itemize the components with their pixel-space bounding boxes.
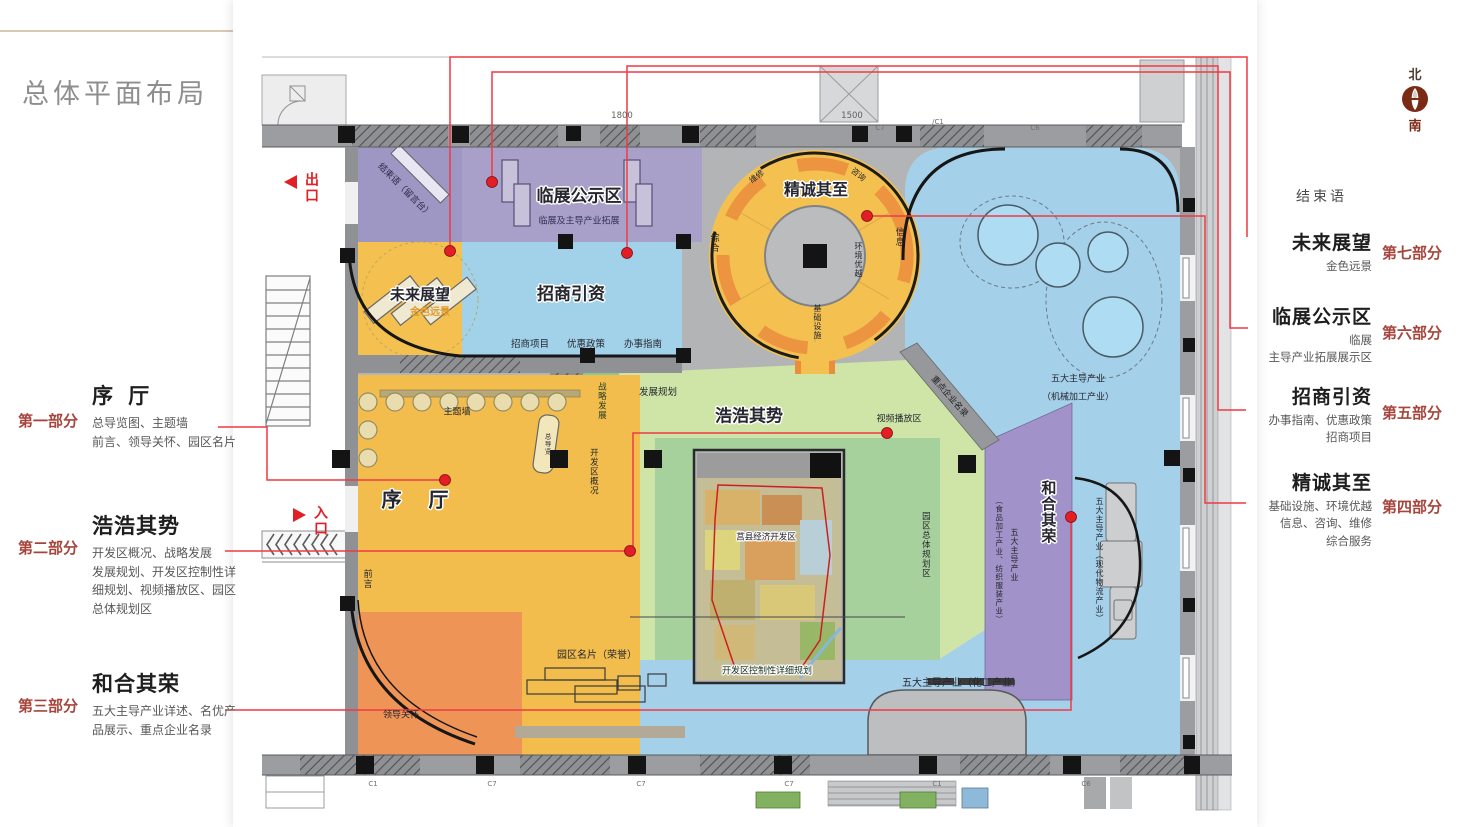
part-title: 临展公示区 (1256, 302, 1372, 329)
label-linzhan-sub: 临展及主导产业拓展 (538, 216, 619, 227)
ending-note: 结束语 (1296, 186, 1347, 206)
label-map-caption: 开发区控制性详细规划 (722, 666, 812, 677)
exit-arrow-icon (284, 175, 297, 189)
grid-ref: C6 (1030, 124, 1039, 132)
part-desc: 金色远景 (1256, 258, 1372, 275)
part-title: 精诚其至 (1256, 468, 1372, 495)
part-number: 第一部分 (18, 380, 82, 451)
grid-ref: C1 (932, 780, 941, 788)
exit-label: 出口 (301, 172, 321, 204)
part-desc: 开发区概况、战略发展 发展规划、开发区控制性详 细规划、视频播放区、园区 总体规… (92, 544, 236, 618)
part-desc: 基础设施、环境优越 信息、咨询、维修 综合服务 (1256, 498, 1372, 550)
part-title: 未来展望 (1256, 228, 1372, 255)
label-jixie-2: （机械加工产业） (1042, 392, 1114, 403)
label-fazhan: 发展规划 (639, 387, 677, 399)
label-linzhan-title: 临展公示区 (537, 186, 622, 207)
label-zhutiqiang: 主题墙 (443, 407, 470, 418)
part-desc: 五大主导产业详述、名优产 品展示、重点企业名录 (92, 702, 236, 739)
grid-ref: C7 (784, 780, 793, 788)
grid-ref: C7 (513, 124, 522, 132)
dim-1500: 1500 (841, 111, 863, 121)
annotation-part-2: 第二部分 浩浩其势 开发区概况、战略发展 发展规划、开发区控制性详 细规划、视频… (18, 510, 250, 618)
label-map-title: 莒县经济开发区 (736, 533, 796, 544)
label-jixie-1: 五大主导产业 (1051, 374, 1105, 385)
label-xuting-title: 序 厅 (382, 488, 459, 513)
label-huanjing: 环境优越 (853, 242, 863, 278)
part-title: 序 厅 (92, 380, 236, 410)
part-number: 第六部分 (1382, 302, 1442, 367)
grid-ref: C7 (748, 124, 757, 132)
entry-arrow-icon (293, 508, 306, 522)
dim-1800: 1800 (611, 111, 633, 121)
grid-ref: /C1 (932, 118, 944, 126)
part-desc: 临展 主导产业拓展展示区 (1256, 332, 1372, 367)
label-xinxi: 信息 (892, 227, 903, 247)
grid-ref: C7 (625, 124, 634, 132)
label-weilai-title: 未来展望 (390, 286, 450, 305)
part-desc: 办事指南、优惠政策 招商项目 (1256, 412, 1372, 447)
compass: 北 南 (1398, 64, 1432, 134)
part-number: 第二部分 (18, 510, 82, 618)
part-desc: 总导览图、主题墙 前言、领导关怀、园区名片 (92, 414, 236, 451)
grid-ref: C6 (1081, 780, 1090, 788)
label-zhaoshang-item3: 办事指南 (624, 339, 662, 351)
label-zonghe: 综合 (707, 233, 718, 253)
compass-icon (1401, 85, 1429, 113)
label-huagong: 五大主导产业（化工产业） (902, 678, 1022, 691)
label-haohao-title: 浩浩其势 (715, 406, 783, 427)
label-shipin: 视频播放区 (876, 414, 921, 425)
label-zhaoshang-item2: 优惠政策 (567, 339, 605, 351)
grid-ref: C7 (875, 124, 884, 132)
label-lingdao: 领导关怀 (383, 710, 419, 721)
annotation-part-1: 第一部分 序 厅 总导览图、主题墙 前言、领导关怀、园区名片 (18, 380, 250, 451)
label-mingpian: 园区名片（荣誉） (557, 650, 637, 663)
label-zhaoshang-item1: 招商项目 (511, 339, 549, 351)
grid-ref: C6 (1130, 124, 1139, 132)
part-title: 招商引资 (1256, 382, 1372, 409)
label-gaikuang: 开发区概况 (588, 448, 599, 496)
compass-south-label: 南 (1408, 115, 1421, 134)
label-zongdaolan: 总导览 (543, 433, 551, 456)
annotation-part-7: 未来展望 金色远景 第七部分 (1256, 228, 1470, 275)
annotation-part-6: 临展公示区 临展 主导产业拓展展示区 第六部分 (1256, 302, 1470, 367)
entry-label: 入口 (310, 505, 330, 537)
part-title: 和合其荣 (92, 668, 236, 698)
label-jichu: 基础设施 (812, 304, 822, 340)
label-hehe-title: 和合其荣 (1039, 480, 1058, 544)
grid-ref: C1 (368, 780, 377, 788)
label-jingcheng-title: 精诚其至 (784, 180, 848, 200)
part-number: 第四部分 (1382, 468, 1442, 550)
part-number: 第七部分 (1382, 228, 1442, 275)
grid-ref: C7 (636, 780, 645, 788)
label-qianyan: 前言 (360, 569, 371, 589)
annotation-part-5: 招商引资 办事指南、优惠政策 招商项目 第五部分 (1256, 382, 1470, 447)
label-hehe-col1: 五大主导产业 (1009, 528, 1019, 582)
part-number: 第三部分 (18, 668, 82, 739)
label-weilai-sub: 金色远景 (410, 307, 450, 320)
label-zhaoshang-title: 招商引资 (537, 284, 605, 305)
page-title: 总体平面布局 (22, 72, 208, 111)
label-zhanlue: 战略发展 (596, 382, 607, 420)
annotation-part-4: 精诚其至 基础设施、环境优越 信息、咨询、维修 综合服务 第四部分 (1256, 468, 1470, 550)
part-title: 浩浩其势 (92, 510, 236, 540)
annotation-part-3: 第三部分 和合其荣 五大主导产业详述、名优产 品展示、重点企业名录 (18, 668, 250, 739)
label-yuanqu: 园区总体规划区 (920, 512, 931, 579)
label-wuliu: 五大主导产业（现代物流产业） (1094, 497, 1104, 623)
exit-gate: 出口 (284, 172, 321, 204)
grid-ref: C7 (487, 780, 496, 788)
compass-north-label: 北 (1408, 64, 1421, 83)
label-hehe-col2: （食品加工产业、纺织服装产业） (994, 496, 1003, 624)
entry-gate: 入口 (293, 505, 330, 537)
part-number: 第五部分 (1382, 382, 1442, 447)
